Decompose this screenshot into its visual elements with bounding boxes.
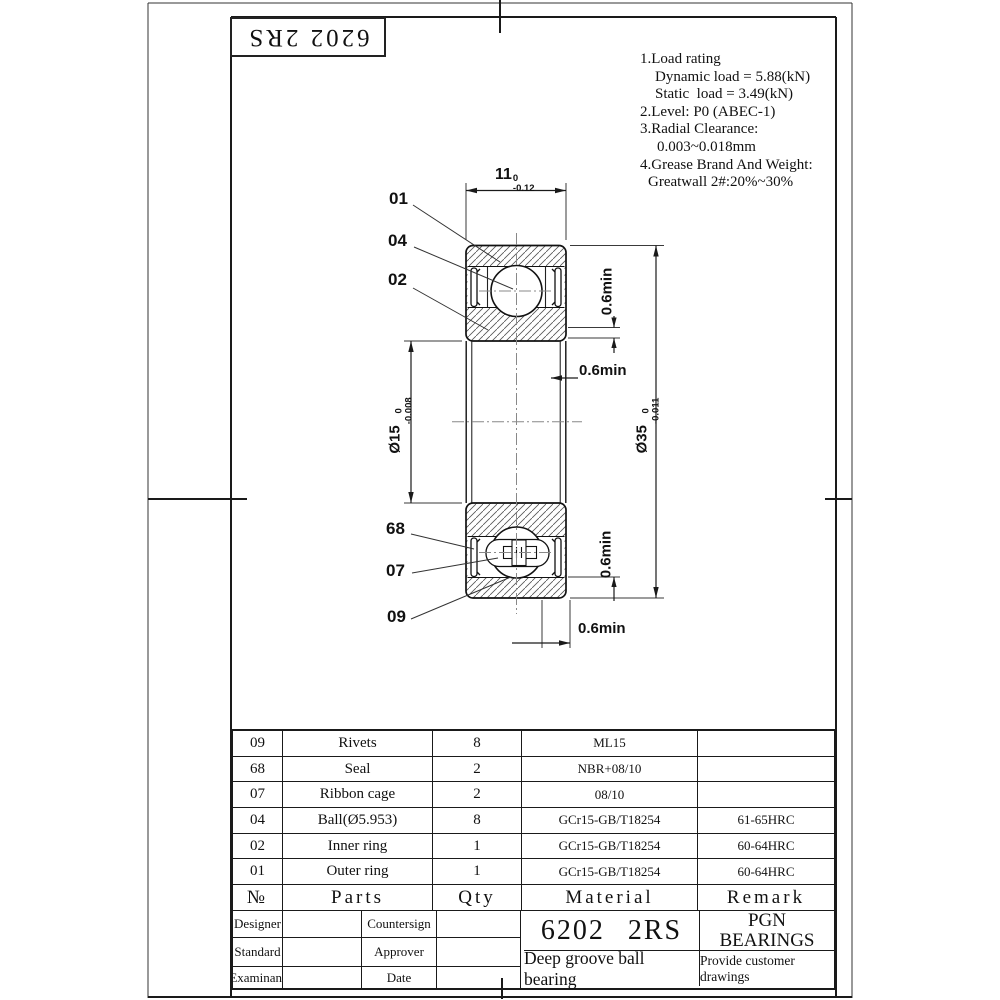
note-line: 3.Radial Clearance: — [640, 121, 813, 139]
examinant-label: Examinant — [233, 967, 283, 988]
cell-remark: 61-65HRC — [698, 808, 834, 834]
balloon-cage: 07 — [386, 561, 405, 581]
company-line2: BEARINGS — [719, 931, 814, 951]
date-value — [437, 967, 521, 988]
cell-material: 08/10 — [522, 782, 698, 808]
cell-remark: 60-64HRC — [698, 834, 834, 860]
parts-table: 09 Rivets 8 ML15 68 Seal 2 NBR+08/10 07 … — [231, 729, 836, 990]
cell-no: 68 — [233, 757, 283, 783]
title-block: Designer Countersign Standard Approver E… — [233, 911, 834, 988]
header-remark: Remark — [698, 885, 834, 911]
company-line1: PGN — [748, 911, 786, 931]
cell-qty: 1 — [433, 859, 522, 885]
customer-note: Provide customer drawings — [700, 951, 834, 986]
designer-label: Designer — [233, 911, 283, 938]
title-block-left: Designer Countersign Standard Approver E… — [233, 911, 524, 988]
part-number-stamp: 6202 2RS — [230, 17, 386, 57]
dim-width-text: 110-0.12 — [495, 166, 535, 193]
cell-parts: Outer ring — [283, 859, 433, 885]
cell-qty: 8 — [433, 731, 522, 757]
cell-remark: 60-64HRC — [698, 859, 834, 885]
cell-qty: 2 — [433, 757, 522, 783]
product-name: Deep groove ball bearing — [524, 951, 700, 986]
cell-qty: 8 — [433, 808, 522, 834]
part-number: 6202 2RS — [524, 911, 700, 951]
dim-recess-top — [568, 316, 620, 353]
note-line: 4.Grease Brand And Weight: — [640, 157, 813, 175]
balloon-rivets: 09 — [387, 607, 406, 627]
standard-value — [283, 938, 362, 967]
cell-remark — [698, 731, 834, 757]
dim-od-text: Ø350-0.011 — [634, 381, 661, 471]
balloon-ball: 04 — [388, 231, 407, 251]
cell-parts: Ball(Ø5.953) — [283, 808, 433, 834]
cell-no: 02 — [233, 834, 283, 860]
header-material: Material — [522, 885, 698, 911]
cell-material: GCr15-GB/T18254 — [522, 859, 698, 885]
note-line: 2.Level: P0 (ABEC-1) — [640, 104, 813, 122]
cell-material: GCr15-GB/T18254 — [522, 834, 698, 860]
cell-no: 04 — [233, 808, 283, 834]
examinant-value — [283, 967, 362, 988]
cell-parts: Rivets — [283, 731, 433, 757]
approver-value — [437, 938, 521, 967]
countersign-label: Countersign — [362, 911, 437, 938]
dim-chamfer-bottom-text: 0.6min — [578, 620, 626, 637]
balloon-seal: 68 — [386, 519, 405, 539]
company-name: PGN BEARINGS — [700, 911, 834, 951]
cell-no: 01 — [233, 859, 283, 885]
designer-value — [283, 911, 362, 938]
dim-chamfer-mid-text: 0.6min — [579, 362, 627, 379]
dim-recess-bottom-text: 0.6min — [598, 525, 615, 585]
cell-remark — [698, 757, 834, 783]
balloon-outer-ring: 01 — [389, 189, 408, 209]
note-line: 0.003~0.018mm — [640, 139, 813, 157]
note-line: Greatwall 2#:20%~30% — [640, 174, 813, 192]
drawing-sheet: 6202 2RS 1.Load rating Dynamic load = 5.… — [0, 0, 1000, 1000]
header-parts: Parts — [283, 885, 433, 911]
balloon-inner-ring: 02 — [388, 270, 407, 290]
note-line: Static load = 3.49(kN) — [640, 86, 813, 104]
note-line: 1.Load rating — [640, 51, 813, 69]
cell-parts: Inner ring — [283, 834, 433, 860]
cell-material: NBR+08/10 — [522, 757, 698, 783]
cell-parts: Seal — [283, 757, 433, 783]
countersign-value — [437, 911, 521, 938]
cell-no: 09 — [233, 731, 283, 757]
dim-chamfer-bottom — [512, 600, 570, 648]
cell-qty: 2 — [433, 782, 522, 808]
standard-label: Standard — [233, 938, 283, 967]
cell-material: ML15 — [522, 731, 698, 757]
cell-no: 07 — [233, 782, 283, 808]
dim-chamfer-mid — [551, 375, 578, 380]
title-block-right: 6202 2RS PGN BEARINGS Deep groove ball b… — [524, 911, 834, 988]
technical-notes: 1.Load rating Dynamic load = 5.88(kN) St… — [640, 51, 813, 192]
cell-parts: Ribbon cage — [283, 782, 433, 808]
cell-qty: 1 — [433, 834, 522, 860]
cell-material: GCr15-GB/T18254 — [522, 808, 698, 834]
date-label: Date — [362, 967, 437, 988]
dim-bore-text: Ø150-0.008 — [387, 381, 414, 471]
header-no: № — [233, 885, 283, 911]
note-line: Dynamic load = 5.88(kN) — [640, 69, 813, 87]
cell-remark — [698, 782, 834, 808]
dim-recess-top-text: 0.6min — [599, 262, 616, 322]
approver-label: Approver — [362, 938, 437, 967]
header-qty: Qty — [433, 885, 522, 911]
parts-rows: 09 Rivets 8 ML15 68 Seal 2 NBR+08/10 07 … — [233, 731, 834, 911]
